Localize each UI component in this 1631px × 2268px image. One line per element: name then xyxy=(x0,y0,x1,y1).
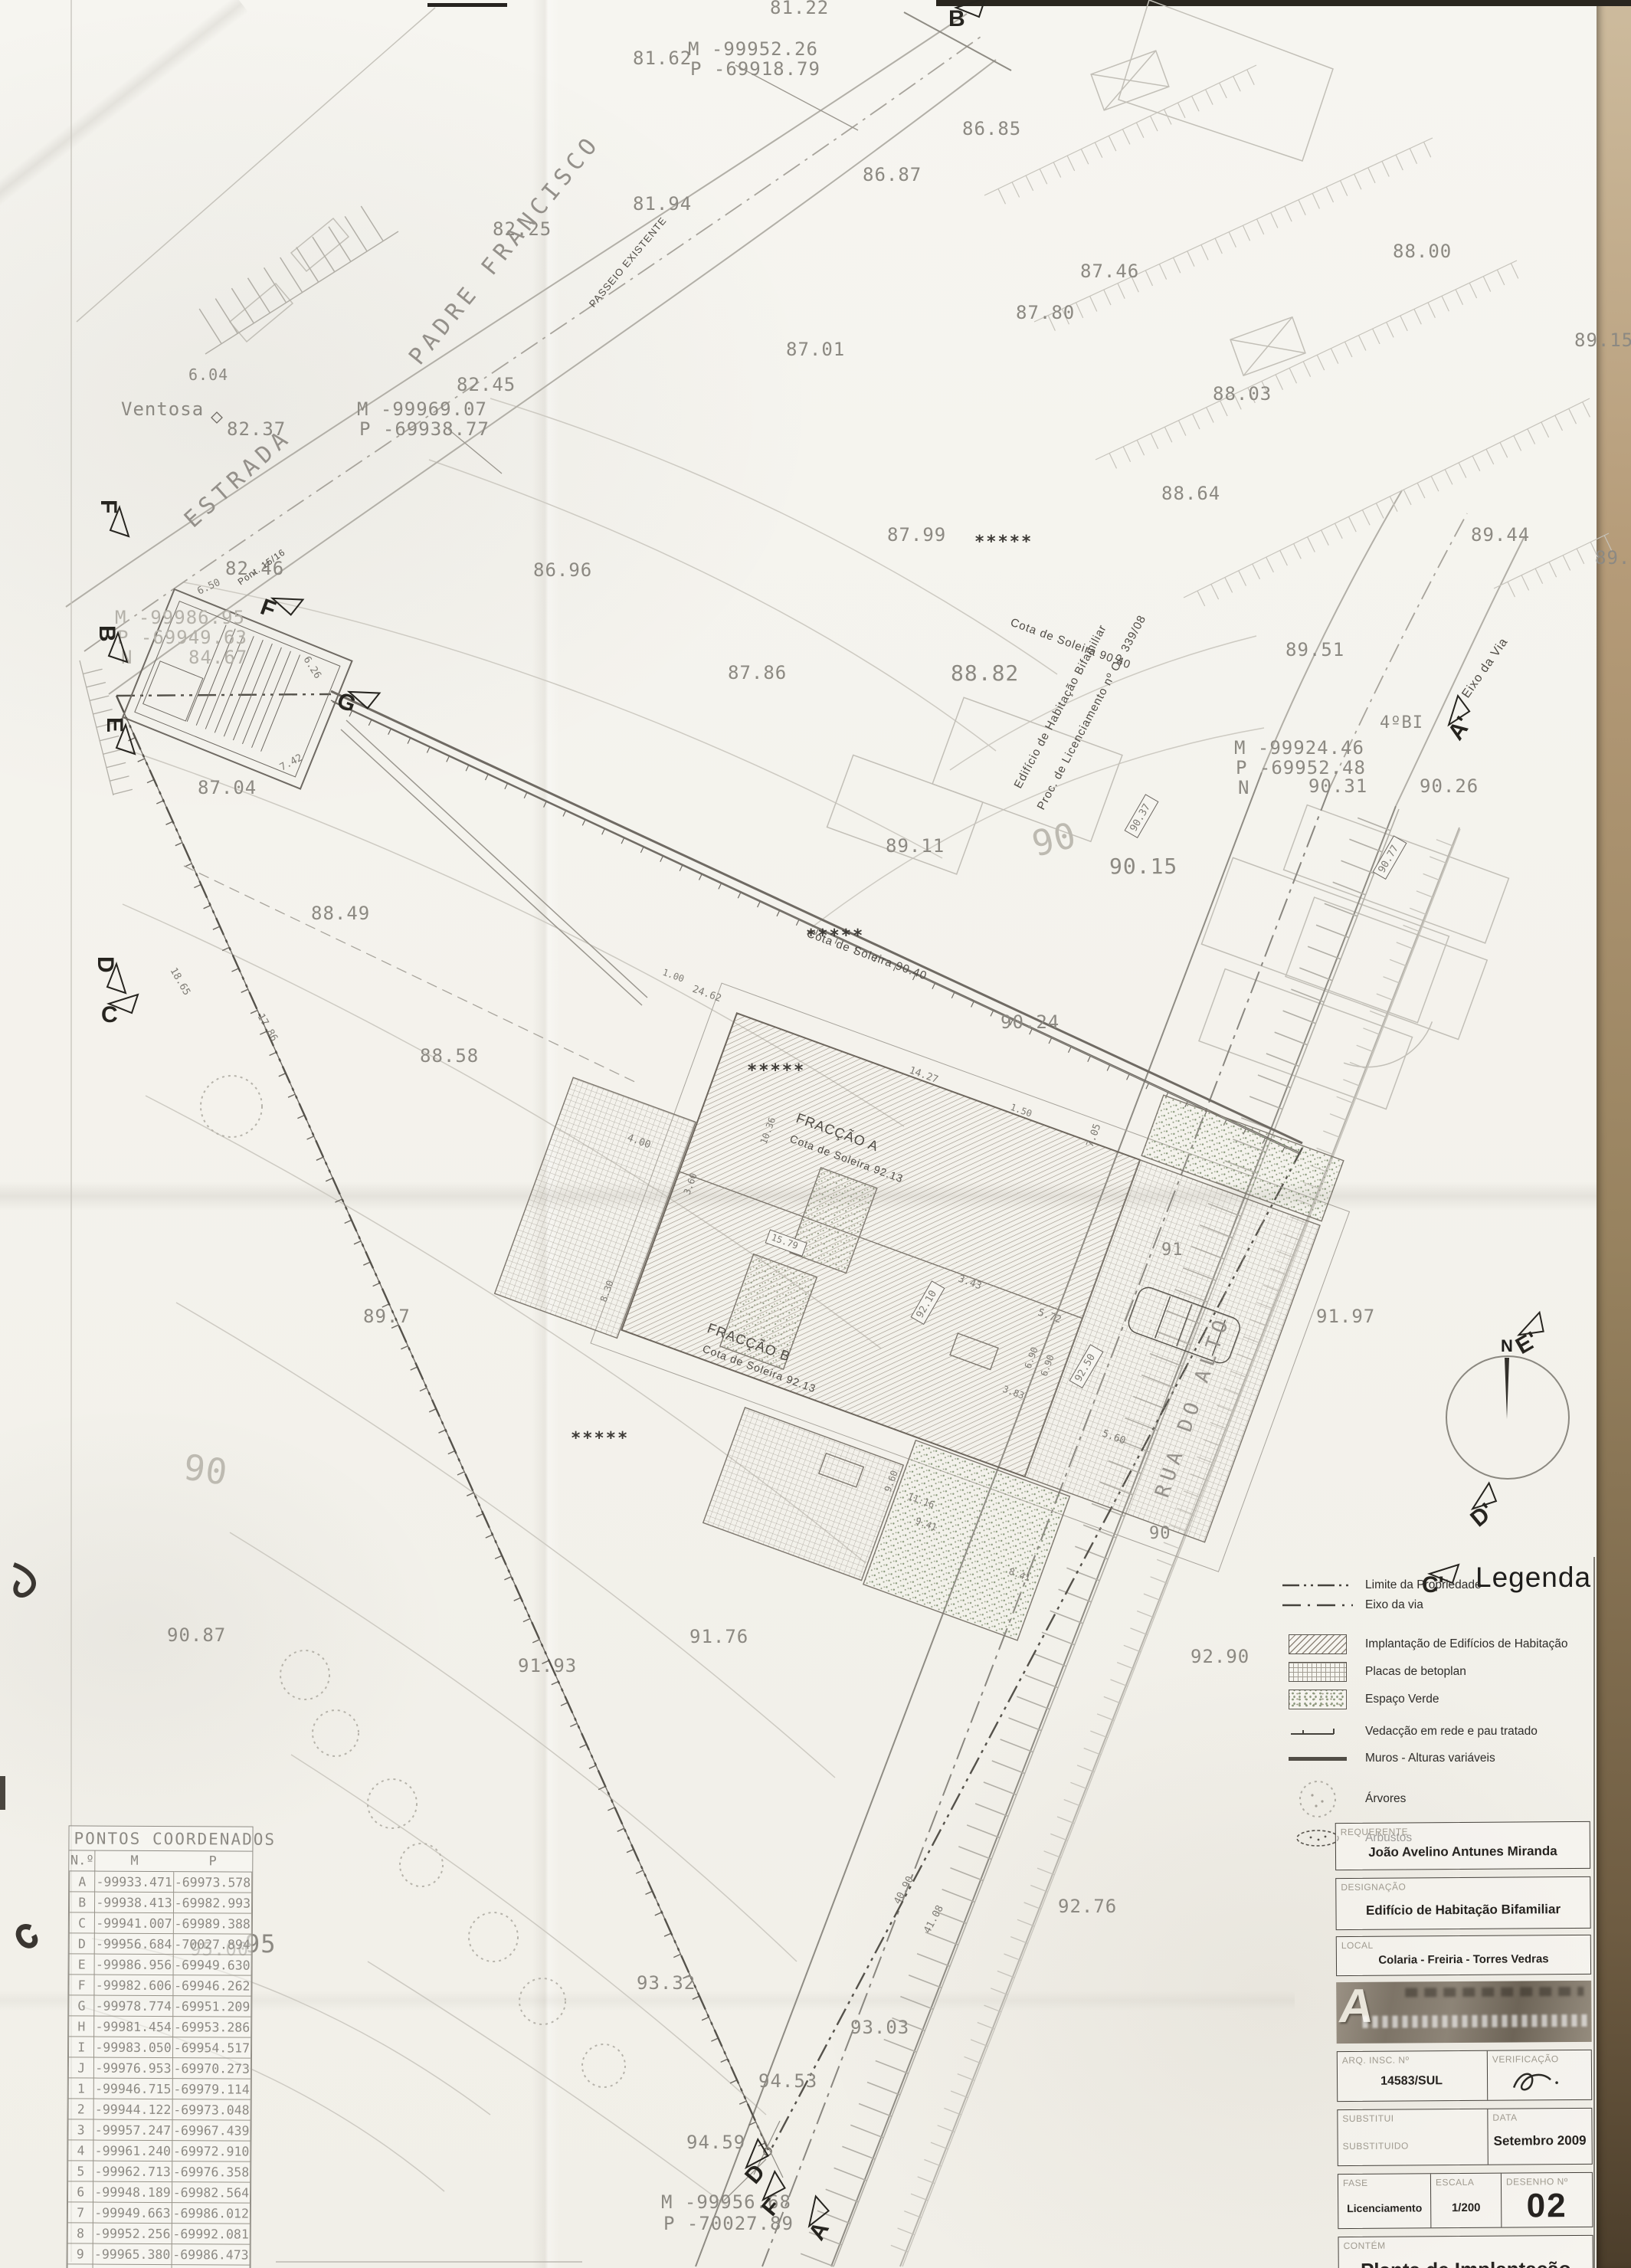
svg-text:P -69918.79: P -69918.79 xyxy=(690,58,820,80)
table-cell: -69973.578 xyxy=(173,1872,251,1893)
plan-label: 90.77 xyxy=(1373,836,1407,879)
svg-text:88.49: 88.49 xyxy=(311,903,370,924)
table-cell: -69972.910 xyxy=(172,2141,250,2162)
coordinates-table: PONTOS COORDENADOS N.º M P A-99933.471-6… xyxy=(66,1825,253,2268)
svg-text:M -99952.26: M -99952.26 xyxy=(688,38,818,60)
section-marker-C: C xyxy=(101,995,138,1027)
svg-text:4ºBI: 4ºBI xyxy=(1380,713,1423,733)
table-cell: -99961.240 xyxy=(93,2140,172,2161)
svg-text:Eixo da Via: Eixo da Via xyxy=(1459,635,1510,700)
svg-text:F: F xyxy=(96,500,121,513)
fase-label: FASE xyxy=(1343,2178,1368,2188)
dashdot-symbol xyxy=(1278,1601,1358,1610)
speckle-symbol xyxy=(1278,1690,1358,1709)
plan-label: 6.50 xyxy=(195,577,222,598)
svg-text:G: G xyxy=(334,688,359,718)
table-cell: -69954.517 xyxy=(172,2037,251,2059)
dashdot2-symbol xyxy=(1278,1581,1358,1590)
desenho-cell: DESENHO Nº 02 xyxy=(1501,2173,1592,2227)
table-cell: -99948.189 xyxy=(93,2181,172,2203)
legend-item-label: Árvores xyxy=(1358,1792,1406,1806)
table-row: 4-99961.240-69972.910 xyxy=(68,2140,251,2161)
svg-text:90: 90 xyxy=(181,1446,230,1493)
plan-label: 91.97 xyxy=(1316,1306,1375,1327)
svg-text:87.80: 87.80 xyxy=(1016,302,1075,323)
shrub-symbol: ***** xyxy=(974,533,1033,552)
svg-text:M -99986.95: M -99986.95 xyxy=(115,607,245,628)
table-cell: -99933.471 xyxy=(95,1871,173,1893)
plan-label: 91.76 xyxy=(689,1626,748,1647)
svg-text:90: 90 xyxy=(1149,1524,1171,1543)
plan-label: 87.04 xyxy=(198,777,257,798)
fase-escala-desenho-row: FASE Licenciamento ESCALA 1/200 DESENHO … xyxy=(1338,2172,1593,2229)
table-cell: 10 xyxy=(67,2264,93,2268)
plan-label: 88.03 xyxy=(1213,383,1272,405)
plan-label: 81.62 xyxy=(633,48,692,69)
table-row: 2-99944.122-69973.048 xyxy=(68,2099,251,2120)
table-cell: -99962.713 xyxy=(93,2161,172,2182)
plan-label: 81.22 xyxy=(770,0,829,18)
plan-label: 88.64 xyxy=(1161,483,1220,504)
svg-text:94.53: 94.53 xyxy=(758,2070,817,2092)
svg-text:6.04: 6.04 xyxy=(188,365,228,384)
section-marker-D: D xyxy=(93,956,126,993)
coord-table-body: A-99933.471-69973.578B-99938.413-69982.9… xyxy=(67,1871,252,2268)
table-row: 7-99949.663-69986.012 xyxy=(67,2202,250,2224)
scanned-site-plan-sheet: ******************** 81.2281.62M -99952.… xyxy=(0,0,1631,2268)
arq-insc-label: ARQ. INSC. Nº xyxy=(1342,2055,1410,2066)
table-row: 1-99946.715-69979.114 xyxy=(68,2078,251,2099)
table-cell: H xyxy=(69,2016,94,2037)
plan-label: 92.76 xyxy=(1058,1896,1117,1917)
legend-item-label: Espaço Verde xyxy=(1358,1693,1439,1706)
desenho-value: 02 xyxy=(1502,2187,1592,2226)
svg-text:92.76: 92.76 xyxy=(1058,1896,1117,1917)
table-cell: -69967.439 xyxy=(172,2120,251,2142)
svg-text:91: 91 xyxy=(1161,1241,1184,1260)
table-cell: -69953.286 xyxy=(172,2017,251,2038)
coordinates-table-title: PONTOS COORDENADOS xyxy=(69,1826,252,1851)
plan-label: 91.93 xyxy=(518,1655,577,1676)
table-row: G-99978.774-69951.209 xyxy=(69,1995,251,2017)
svg-text:89.44: 89.44 xyxy=(1471,524,1530,546)
contem-box: CONTÉM Planta de Implantação xyxy=(1338,2235,1593,2268)
plan-label: 18.65 xyxy=(168,966,193,998)
legend-item-label: Implantação de Edifícios de Habitação xyxy=(1358,1637,1568,1651)
col-header-p: P xyxy=(173,1851,251,1872)
legend-item-label: Limite da Propriedade xyxy=(1358,1578,1482,1592)
designacao-box: DESIGNAÇÃO Edifício de Habitação Bifamil… xyxy=(1335,1876,1590,1930)
plan-label: 90.26 xyxy=(1420,775,1479,797)
requerente-box: REQUERENTE João Avelino Antunes Miranda xyxy=(1335,1821,1590,1870)
local-value: Colaria - Freiria - Torres Vedras xyxy=(1337,1952,1590,1967)
wall-symbol xyxy=(1278,1757,1358,1761)
legend-item: Implantação de Edifícios de Habitação xyxy=(1278,1632,1607,1656)
table-cell: 1 xyxy=(68,2078,93,2099)
svg-text:88.58: 88.58 xyxy=(420,1045,479,1067)
plan-label: ESTRADA xyxy=(179,424,297,533)
table-cell: -69949.630 xyxy=(173,1955,251,1976)
table-cell: -99957.247 xyxy=(93,2119,172,2141)
svg-text:89.15: 89.15 xyxy=(1574,329,1631,351)
svg-text:N: N xyxy=(1238,777,1249,798)
svg-text:87.46: 87.46 xyxy=(1080,261,1139,282)
plan-label: 6.26 xyxy=(301,654,323,681)
svg-text:88.64: 88.64 xyxy=(1161,483,1220,504)
legend-item: Vedacção em rede e pau tratado xyxy=(1278,1720,1607,1743)
svg-text:91.76: 91.76 xyxy=(689,1626,748,1647)
table-cell: -99976.953 xyxy=(94,2057,172,2079)
table-cell: -99964.186 xyxy=(93,2264,171,2268)
svg-text:24.62: 24.62 xyxy=(691,984,723,1005)
legend-item: Muros - Alturas variáveis xyxy=(1278,1748,1607,1769)
svg-text:D: D xyxy=(93,956,118,973)
plan-label: 94.53 xyxy=(758,2070,817,2092)
plan-label: 93.03 xyxy=(850,2017,909,2038)
plan-label: 4ºBI xyxy=(1380,713,1423,733)
plan-label: Eixo da Via xyxy=(1459,635,1510,700)
verificacao-label: VERIFICAÇÃO xyxy=(1492,2053,1559,2065)
table-cell: 5 xyxy=(68,2161,93,2181)
svg-text:86.85: 86.85 xyxy=(962,118,1021,139)
svg-text:18.65: 18.65 xyxy=(168,966,193,998)
table-row: 5-99962.713-69976.358 xyxy=(68,2161,251,2182)
plan-label: M -99986.95 xyxy=(115,607,245,628)
plan-label: M -99952.26 xyxy=(688,38,818,60)
table-cell: 2 xyxy=(68,2099,93,2119)
svg-text:C: C xyxy=(101,1002,118,1027)
legend: Limite da PropriedadeEixo da viaImplanta… xyxy=(1278,1575,1607,1853)
svg-text:90.31: 90.31 xyxy=(1308,775,1367,797)
plan-label: 84.67 xyxy=(188,647,247,668)
table-row: 8-99952.256-69992.081 xyxy=(67,2223,250,2244)
legend-item: Espaço Verde xyxy=(1278,1687,1607,1711)
plan-label: 86.85 xyxy=(962,118,1021,139)
svg-text:90.26: 90.26 xyxy=(1420,775,1479,797)
col-header-n: N.º xyxy=(70,1850,95,1871)
legend-item-label: Eixo da via xyxy=(1358,1598,1423,1612)
plan-label: 89.35 xyxy=(1595,547,1631,569)
svg-text:90.87: 90.87 xyxy=(167,1624,226,1646)
svg-text:87.99: 87.99 xyxy=(887,524,946,546)
plan-label: 93.32 xyxy=(637,1972,696,1994)
svg-text:89.35: 89.35 xyxy=(1595,547,1631,569)
table-row: E-99986.956-69949.630 xyxy=(69,1954,251,1975)
table-cell: -99949.663 xyxy=(93,2202,172,2224)
shrub-symbol: ***** xyxy=(571,1429,629,1448)
escala-value: 1/200 xyxy=(1431,2201,1501,2215)
svg-text:82.45: 82.45 xyxy=(457,374,516,395)
svg-text:D: D xyxy=(740,2160,770,2189)
svg-text:D': D' xyxy=(1466,1499,1498,1532)
table-cell: -99978.774 xyxy=(94,1995,172,2017)
svg-text:6.50: 6.50 xyxy=(195,577,222,598)
svg-text:93.32: 93.32 xyxy=(637,1972,696,1994)
table-row: B-99938.413-69982.993 xyxy=(69,1892,251,1913)
tree-symbol xyxy=(1278,1778,1358,1820)
section-marker-A: A xyxy=(797,2196,844,2244)
desenho-label: DESENHO Nº xyxy=(1506,2176,1568,2188)
svg-text:86.87: 86.87 xyxy=(863,164,922,185)
table-cell: -99956.684 xyxy=(95,1933,173,1955)
svg-text:89.51: 89.51 xyxy=(1285,639,1344,660)
legend-items: Limite da PropriedadeEixo da viaImplanta… xyxy=(1278,1575,1607,1853)
plan-label: M -99924.46 xyxy=(1234,737,1364,759)
table-row: H-99981.454-69953.286 xyxy=(69,2016,251,2037)
svg-text:ESTRADA: ESTRADA xyxy=(179,424,297,533)
svg-text:B: B xyxy=(94,625,120,642)
tree-symbol xyxy=(313,1710,359,1756)
contem-label: CONTÉM xyxy=(1344,2240,1386,2251)
plan-label: P -69938.77 xyxy=(359,418,490,440)
svg-text:89.11: 89.11 xyxy=(886,835,945,857)
compass-north-label: N xyxy=(1501,1336,1513,1355)
substitui-label: SUBSTITUI xyxy=(1342,2113,1394,2124)
hatch-symbol xyxy=(1278,1634,1358,1654)
arq-insc-row: ARQ. INSC. Nº 14583/SUL VERIFICAÇÃO xyxy=(1337,2050,1592,2102)
svg-text:Cota de Soleira 90.40: Cota de Soleira 90.40 xyxy=(805,927,929,983)
plan-label: 91 xyxy=(1161,1241,1184,1260)
svg-text:87.01: 87.01 xyxy=(786,339,845,360)
svg-text:E: E xyxy=(102,717,127,733)
table-row: C-99941.007-69989.388 xyxy=(69,1912,251,1934)
svg-text:17.86: 17.86 xyxy=(255,1012,280,1044)
plan-label: 1.00 xyxy=(661,967,686,985)
svg-text:PASSEIO EXISTENTE: PASSEIO EXISTENTE xyxy=(587,215,669,310)
svg-text:B: B xyxy=(948,6,965,31)
legend-item-label: Muros - Alturas variáveis xyxy=(1358,1752,1495,1765)
plan-label: PASSEIO EXISTENTE xyxy=(587,215,669,310)
section-marker-B: B xyxy=(948,0,985,31)
table-row: 6-99948.189-69982.564 xyxy=(68,2181,251,2203)
svg-text:94.59: 94.59 xyxy=(686,2132,745,2153)
legend-item: Eixo da via xyxy=(1278,1595,1607,1615)
local-label: LOCAL xyxy=(1341,1940,1374,1951)
table-row: A-99933.471-69973.578 xyxy=(70,1871,252,1893)
plan-label: 82.45 xyxy=(457,374,516,395)
plan-label: 87.86 xyxy=(728,662,787,683)
legend-item-label: Placas de betoplan xyxy=(1358,1665,1466,1679)
table-row: F-99982.606-69946.262 xyxy=(69,1975,251,1996)
data-label: DATA xyxy=(1492,2112,1517,2123)
compass-needle xyxy=(1505,1358,1509,1419)
table-row: 9-99965.380-69986.473 xyxy=(67,2243,250,2265)
section-marker-F: F xyxy=(96,500,129,536)
plan-label: 7.42 xyxy=(278,752,305,774)
table-cell: C xyxy=(69,1912,94,1933)
table-cell: -69982.564 xyxy=(172,2182,250,2204)
table-row: J-99976.953-69970.273 xyxy=(68,2057,251,2079)
section-marker-Dp: D' xyxy=(1461,1483,1510,1532)
svg-text:84.67: 84.67 xyxy=(188,647,247,668)
svg-text:88.00: 88.00 xyxy=(1393,241,1452,262)
table-cell: A xyxy=(70,1871,95,1892)
plan-label: 90.87 xyxy=(167,1624,226,1646)
sheet-title: Planta de Implantação xyxy=(1339,2257,1593,2268)
plan-label: 92.90 xyxy=(1190,1646,1249,1667)
table-cell: -69951.209 xyxy=(172,1996,251,2017)
designacao-label: DESIGNAÇÃO xyxy=(1341,1882,1406,1893)
plan-label: 81.94 xyxy=(633,193,692,215)
arq-insc-value: 14583/SUL xyxy=(1338,2074,1485,2089)
data-cell: DATA Setembro 2009 xyxy=(1487,2109,1591,2165)
table-cell: -99941.007 xyxy=(95,1912,173,1934)
svg-text:88.82: 88.82 xyxy=(951,660,1019,686)
table-cell: 4 xyxy=(68,2140,93,2161)
table-cell: -69973.048 xyxy=(172,2099,251,2121)
table-cell: -69979.114 xyxy=(172,2079,251,2100)
table-cell: -99938.413 xyxy=(95,1892,173,1913)
escala-cell: ESCALA 1/200 xyxy=(1430,2174,1501,2228)
grid-symbol xyxy=(1278,1662,1358,1682)
ink-marks xyxy=(0,1565,35,1945)
table-cell: 9 xyxy=(67,2243,93,2264)
substituido-label: SUBSTITUIDO xyxy=(1343,2141,1409,2152)
table-cell: -69976.358 xyxy=(172,2161,250,2183)
local-box: LOCAL Colaria - Freiria - Torres Vedras xyxy=(1336,1935,1591,1976)
plan-label: 6.04 xyxy=(188,365,228,384)
svg-text:81.94: 81.94 xyxy=(633,193,692,215)
plan-label: 87.46 xyxy=(1080,261,1139,282)
table-row: 10-99964.186-69979.805 xyxy=(67,2264,250,2268)
svg-text:M -99924.46: M -99924.46 xyxy=(1234,737,1364,759)
plan-label: M -99969.07 xyxy=(357,398,487,420)
table-cell: B xyxy=(69,1892,94,1912)
verificacao-cell: VERIFICAÇÃO xyxy=(1487,2050,1591,2100)
escala-label: ESCALA xyxy=(1436,2177,1474,2188)
table-cell: E xyxy=(69,1954,94,1975)
section-marker-Ep: E' xyxy=(1508,1313,1556,1359)
svg-text:90.15: 90.15 xyxy=(1109,854,1177,879)
svg-text:91.93: 91.93 xyxy=(518,1655,577,1676)
table-cell: -99982.606 xyxy=(94,1975,172,1996)
svg-text:87.86: 87.86 xyxy=(728,662,787,683)
plan-label: 86.87 xyxy=(863,164,922,185)
table-cell: -69979.805 xyxy=(172,2265,250,2268)
designacao-value: Edifício de Habitação Bifamiliar xyxy=(1336,1902,1590,1919)
plan-label: 89.51 xyxy=(1285,639,1344,660)
table-row: D-99956.684-70027.894 xyxy=(69,1933,251,1955)
svg-text:87.04: 87.04 xyxy=(198,777,257,798)
table-cell: 7 xyxy=(67,2202,93,2223)
legend-item: Placas de betoplan xyxy=(1278,1660,1607,1683)
plan-label: 89.7 xyxy=(363,1306,411,1327)
stamp-smudge-top xyxy=(1405,1987,1584,1998)
tree-symbol xyxy=(582,2044,625,2087)
table-cell: 6 xyxy=(68,2181,93,2202)
table-cell: -99981.454 xyxy=(94,2016,172,2037)
table-cell: -99944.122 xyxy=(93,2099,172,2120)
requerente-value: João Avelino Antunes Miranda xyxy=(1336,1844,1590,1860)
table-cell: -69982.993 xyxy=(173,1893,251,1914)
svg-text:81.62: 81.62 xyxy=(633,48,692,69)
tree-symbol xyxy=(201,1076,262,1137)
table-cell: -99952.256 xyxy=(93,2223,172,2244)
table-cell: -69970.273 xyxy=(172,2058,251,2080)
svg-text:93.03: 93.03 xyxy=(850,2017,909,2038)
plan-label: 89.44 xyxy=(1471,524,1530,546)
table-cell: D xyxy=(69,1933,94,1954)
plan-label: 90.15 xyxy=(1109,854,1177,879)
legend-item: Árvores xyxy=(1278,1778,1607,1820)
data-value: Setembro 2009 xyxy=(1489,2133,1592,2149)
plan-label: 87.80 xyxy=(1016,302,1075,323)
svg-text:6.26: 6.26 xyxy=(301,654,323,681)
svg-text:P -69949.63: P -69949.63 xyxy=(117,627,247,648)
table-cell: -99986.956 xyxy=(94,1954,172,1975)
plan-label: 17.86 xyxy=(255,1012,280,1044)
plan-label: N xyxy=(1238,777,1249,798)
plan-label: 88.58 xyxy=(420,1045,479,1067)
svg-text:7.42: 7.42 xyxy=(278,752,305,774)
plan-label: 88.00 xyxy=(1393,241,1452,262)
plan-label: 88.82 xyxy=(951,660,1019,686)
svg-text:M -99969.07: M -99969.07 xyxy=(357,398,487,420)
proposed-building xyxy=(444,903,1365,1697)
svg-text:81.22: 81.22 xyxy=(770,0,829,18)
table-cell: -99983.050 xyxy=(94,2037,172,2058)
table-cell: F xyxy=(69,1975,94,1995)
plan-label: 87.01 xyxy=(786,339,845,360)
plan-label: 40.90 xyxy=(892,1874,916,1906)
svg-text:90.24: 90.24 xyxy=(1001,1011,1059,1033)
tree-symbol xyxy=(519,1978,565,2024)
plan-label: P -69918.79 xyxy=(690,58,820,80)
plan-label: 89.15 xyxy=(1574,329,1631,351)
plan-label: 87.99 xyxy=(887,524,946,546)
table-cell: -69986.473 xyxy=(172,2244,250,2266)
svg-text:91.97: 91.97 xyxy=(1316,1306,1375,1327)
plan-label: PADRE FRANCISCO xyxy=(404,129,606,370)
requerente-label: REQUERENTE xyxy=(1341,1827,1408,1838)
architect-stamp: A xyxy=(1336,1981,1592,2043)
stamp-smudge-text xyxy=(1362,2014,1587,2028)
table-row: I-99983.050-69954.517 xyxy=(68,2037,251,2058)
plan-label: Ventosa xyxy=(121,398,204,420)
svg-text:Ventosa: Ventosa xyxy=(121,398,204,420)
tree-symbol xyxy=(280,1650,329,1699)
table-cell: J xyxy=(68,2057,93,2078)
plan-label: P -69949.63 xyxy=(117,627,247,648)
table-cell: -69992.081 xyxy=(172,2224,250,2245)
svg-text:41.08: 41.08 xyxy=(922,1903,946,1935)
svg-text:A': A' xyxy=(1443,712,1477,745)
table-cell: -69986.012 xyxy=(172,2203,250,2224)
tree-symbol xyxy=(469,1912,518,1962)
legend-item-label: Vedacção em rede e pau tratado xyxy=(1358,1725,1538,1739)
plan-label: Cota de Soleira 90.40 xyxy=(805,927,929,983)
table-cell: -99946.715 xyxy=(94,2078,172,2099)
table-cell: G xyxy=(69,1995,94,2016)
table-cell: I xyxy=(68,2037,93,2057)
table-cell: -70027.894 xyxy=(173,1934,251,1955)
coord-table-head: N.º M P xyxy=(70,1850,252,1872)
shrub-symbol: ***** xyxy=(747,1061,805,1080)
fase-value: Licenciamento xyxy=(1338,2201,1430,2214)
plan-label: 24.62 xyxy=(691,984,723,1005)
title-block: REQUERENTE João Avelino Antunes Miranda … xyxy=(1335,1821,1594,2268)
plan-label: 90.31 xyxy=(1308,775,1367,797)
svg-text:92.90: 92.90 xyxy=(1190,1646,1249,1667)
plan-label: 41.08 xyxy=(922,1903,946,1935)
svg-text:1.00: 1.00 xyxy=(661,967,686,985)
svg-text:PADRE FRANCISCO: PADRE FRANCISCO xyxy=(404,129,606,370)
legend-item: Limite da Propriedade xyxy=(1278,1575,1607,1595)
verification-signature xyxy=(1509,2067,1570,2096)
section-marker-F: F xyxy=(257,587,303,631)
plan-label: 90.37 xyxy=(1125,795,1158,837)
plan-label: 90.24 xyxy=(1001,1011,1059,1033)
